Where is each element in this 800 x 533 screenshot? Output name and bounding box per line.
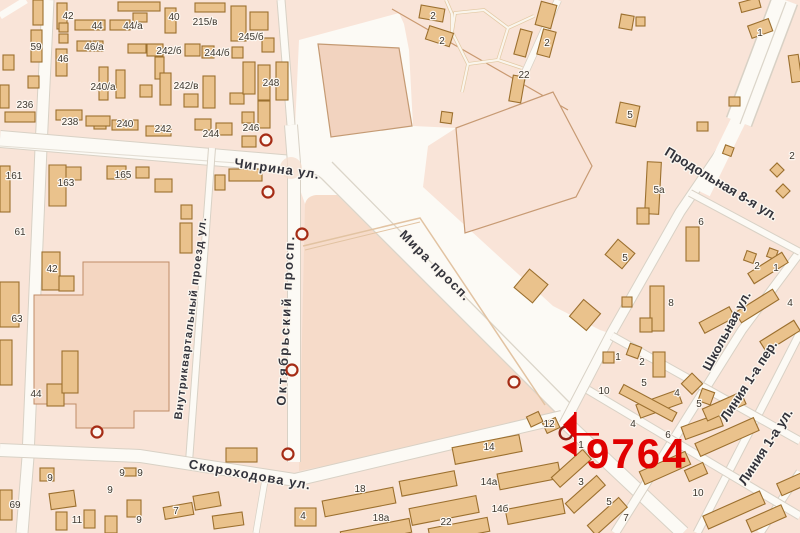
svg-text:1: 1 [615, 352, 621, 363]
svg-text:2: 2 [430, 11, 436, 22]
svg-text:1: 1 [757, 28, 763, 39]
svg-text:59: 59 [30, 42, 42, 53]
svg-text:242: 242 [155, 124, 172, 135]
svg-text:238: 238 [62, 117, 79, 128]
svg-text:7: 7 [173, 506, 179, 517]
svg-text:2: 2 [789, 151, 795, 162]
svg-text:9764: 9764 [586, 430, 687, 477]
svg-text:61: 61 [14, 227, 26, 238]
svg-text:44: 44 [91, 21, 103, 32]
svg-text:165: 165 [115, 170, 132, 181]
svg-text:240/а: 240/а [90, 82, 115, 93]
svg-text:1: 1 [773, 263, 779, 274]
svg-text:2: 2 [639, 357, 645, 368]
svg-text:215/в: 215/в [193, 17, 218, 28]
svg-text:14а: 14а [481, 477, 498, 488]
svg-text:5: 5 [641, 378, 647, 389]
svg-text:42: 42 [62, 11, 74, 22]
svg-text:2: 2 [544, 38, 550, 49]
svg-text:5: 5 [696, 399, 702, 410]
svg-text:240: 240 [117, 119, 134, 130]
svg-text:9: 9 [107, 485, 113, 496]
svg-text:18а: 18а [373, 513, 390, 524]
svg-text:9: 9 [119, 468, 125, 479]
svg-text:236: 236 [17, 100, 34, 111]
svg-text:46: 46 [57, 54, 69, 65]
svg-text:42: 42 [46, 264, 58, 275]
svg-text:5а: 5а [653, 185, 665, 196]
svg-text:44/а: 44/а [123, 21, 143, 32]
svg-text:5: 5 [622, 253, 628, 264]
svg-text:1: 1 [578, 440, 584, 451]
svg-text:248: 248 [263, 78, 280, 89]
svg-text:18: 18 [354, 484, 366, 495]
svg-text:242/б: 242/б [156, 45, 181, 57]
svg-text:4: 4 [674, 388, 680, 399]
svg-text:44: 44 [30, 389, 42, 400]
svg-text:22: 22 [518, 70, 530, 81]
svg-text:40: 40 [168, 12, 180, 23]
svg-text:245/б: 245/б [238, 31, 263, 43]
svg-text:4: 4 [630, 419, 636, 430]
svg-text:4: 4 [787, 298, 793, 309]
svg-text:2: 2 [439, 36, 445, 47]
svg-text:22: 22 [440, 517, 452, 528]
svg-text:9: 9 [47, 473, 53, 484]
svg-text:9: 9 [136, 515, 142, 526]
svg-text:246: 246 [243, 123, 260, 134]
svg-text:163: 163 [58, 178, 75, 189]
svg-text:12: 12 [543, 419, 555, 430]
svg-text:2: 2 [754, 261, 760, 272]
svg-text:69: 69 [9, 500, 21, 511]
svg-text:161: 161 [6, 171, 23, 182]
svg-text:3: 3 [578, 477, 584, 488]
svg-text:8: 8 [668, 298, 674, 309]
svg-text:5: 5 [606, 497, 612, 508]
svg-text:46/а: 46/а [84, 42, 104, 53]
svg-text:11: 11 [72, 515, 83, 526]
svg-text:4: 4 [300, 511, 306, 522]
svg-text:5: 5 [627, 110, 633, 121]
svg-text:63: 63 [11, 314, 23, 325]
svg-text:10: 10 [598, 386, 610, 397]
svg-text:6: 6 [698, 217, 704, 228]
svg-text:10: 10 [692, 488, 704, 499]
svg-text:244/б: 244/б [204, 47, 229, 59]
svg-text:242/в: 242/в [174, 81, 199, 92]
svg-text:9: 9 [137, 468, 143, 479]
svg-text:14: 14 [483, 442, 495, 453]
svg-text:14б: 14б [492, 503, 509, 515]
svg-text:7: 7 [623, 513, 629, 524]
svg-text:244: 244 [203, 129, 220, 140]
